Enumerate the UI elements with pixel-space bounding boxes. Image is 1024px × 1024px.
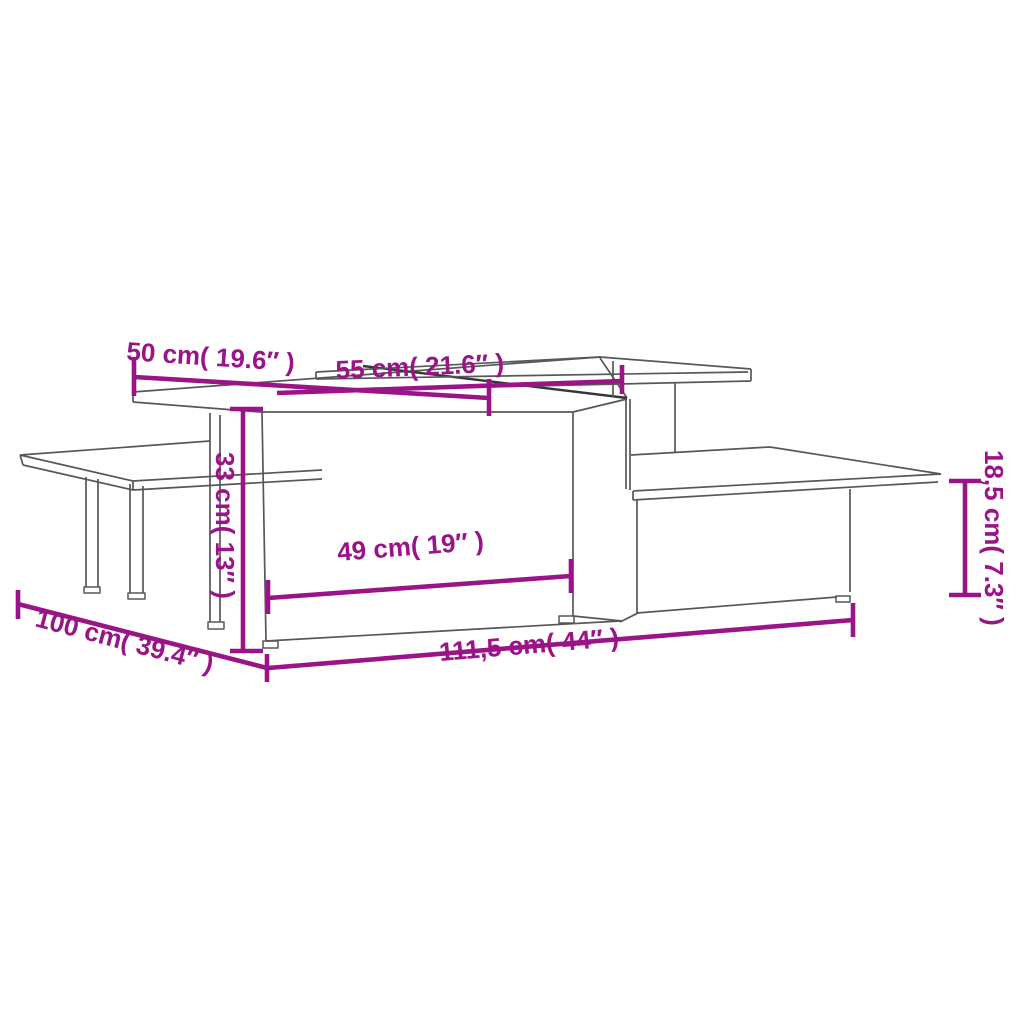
dimension-depth-total: 100 cm( 39.4″ ) [18,590,267,682]
dim-label-111-5cm: 111,5 cm( 44″ ) [438,622,620,667]
dimension-inner-length: 49 cm( 19″ ) [268,526,571,614]
dimension-height-low: 18,5 cm( 7.3″ ) [949,450,1009,626]
dim-label-33cm: 33 cm( 13″ ) [210,452,240,599]
dimension-height-tall: 33 cm( 13″ ) [210,409,263,651]
dim-label-50cm: 50 cm( 19.6″ ) [126,336,296,377]
main-table-outline [133,357,638,641]
dimension-diagram: 50 cm( 19.6″ ) 55 cm( 21.6″ ) 33 cm( 13″… [0,0,1024,1024]
dimension-line-49cm [268,559,571,614]
furniture-outline [20,357,941,648]
dim-label-49cm: 49 cm( 19″ ) [336,526,485,567]
left-low-table-outline [20,441,322,593]
dimension-line-18-5cm [949,481,981,595]
dim-label-100cm: 100 cm( 39.4″ ) [32,603,217,679]
dim-label-18-5cm: 18,5 cm( 7.3″ ) [979,450,1009,626]
right-table-lower-tier-outline [631,447,941,613]
